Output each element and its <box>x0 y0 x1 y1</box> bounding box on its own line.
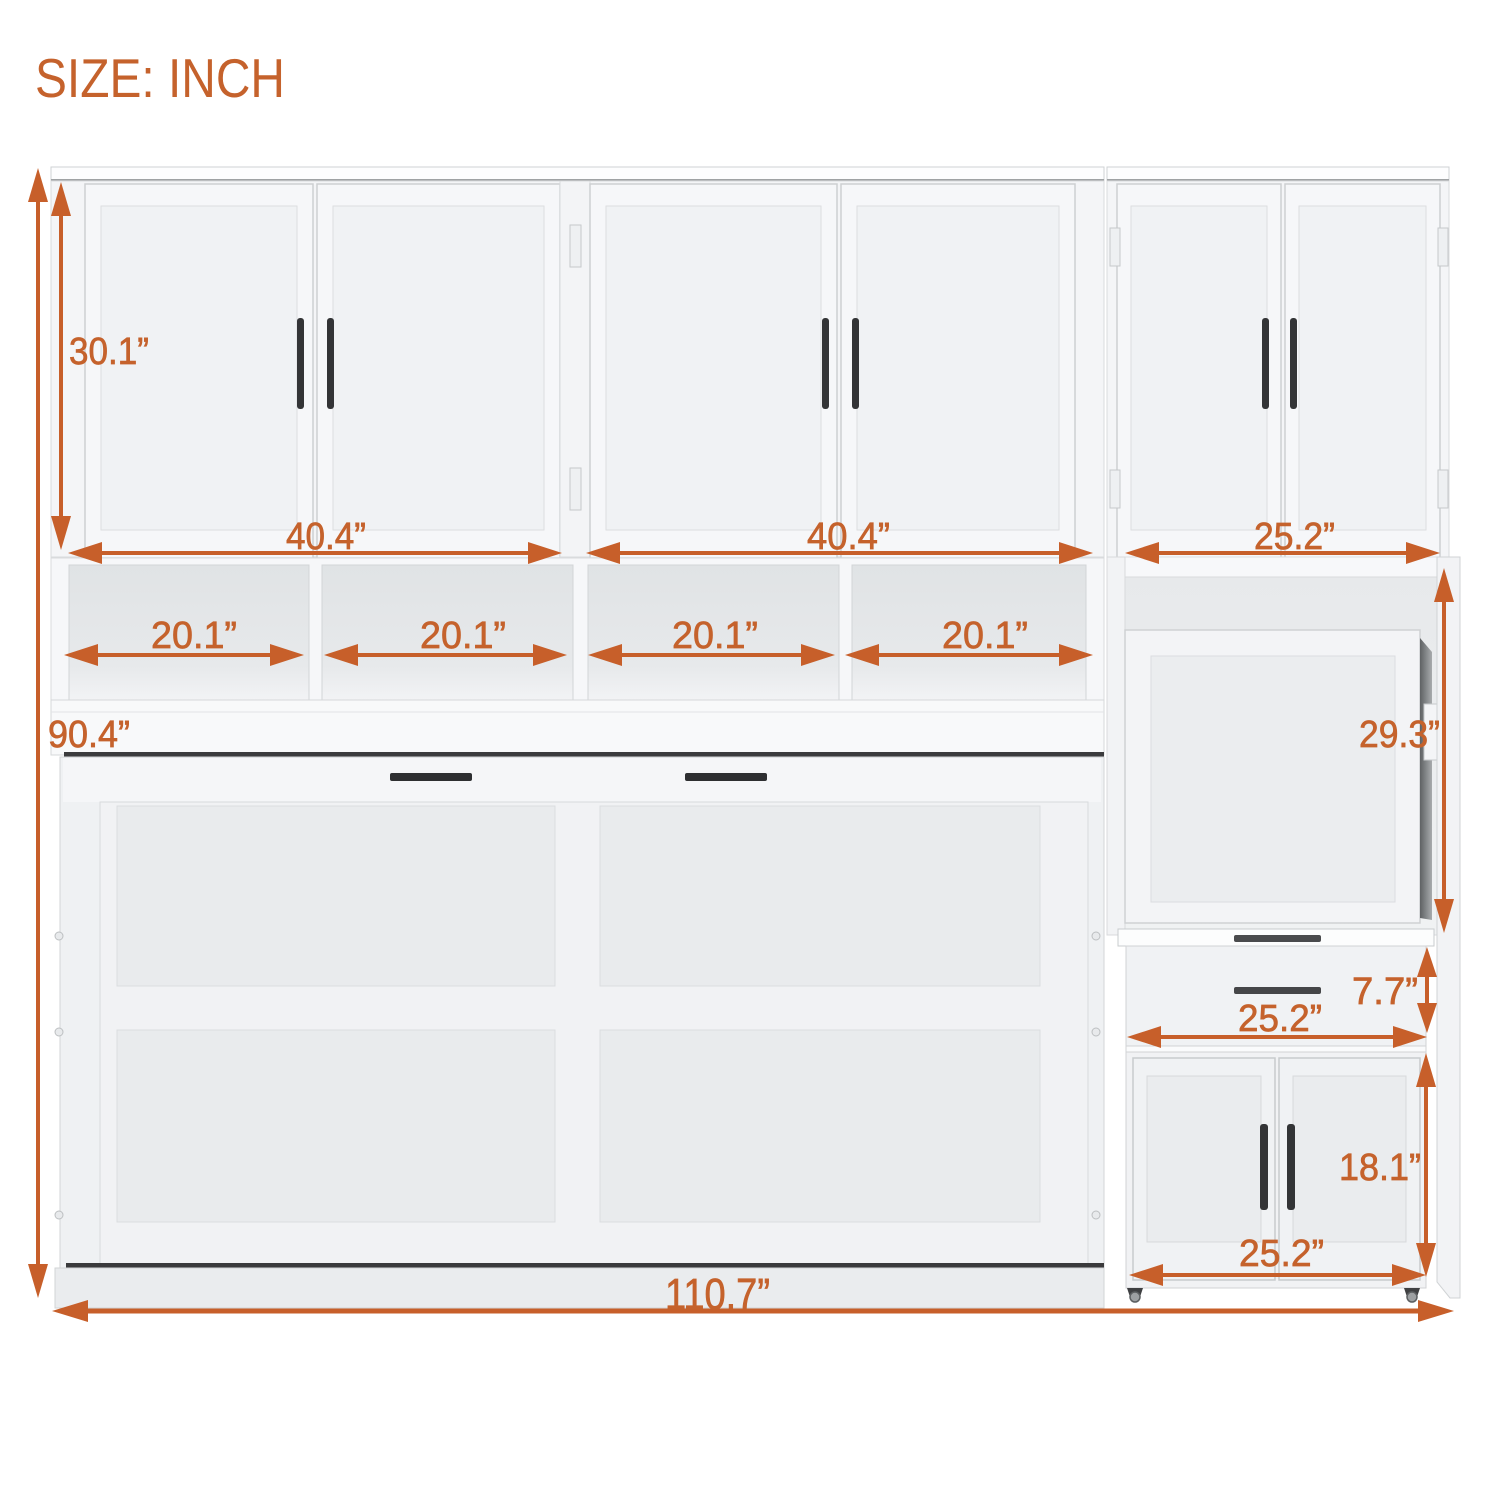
svg-text:29.3”: 29.3” <box>1359 714 1440 756</box>
svg-text:20.1”: 20.1” <box>942 615 1028 657</box>
svg-text:18.1”: 18.1” <box>1339 1147 1421 1189</box>
svg-text:25.2”: 25.2” <box>1254 516 1335 558</box>
svg-text:20.1”: 20.1” <box>672 615 758 657</box>
svg-text:40.4”: 40.4” <box>286 516 366 558</box>
svg-text:20.1”: 20.1” <box>420 615 506 657</box>
svg-text:30.1”: 30.1” <box>69 331 149 373</box>
svg-text:SIZE: INCH: SIZE: INCH <box>35 47 285 109</box>
svg-text:7.7”: 7.7” <box>1352 971 1418 1013</box>
svg-text:40.4”: 40.4” <box>807 516 890 558</box>
svg-text:25.2”: 25.2” <box>1239 1233 1324 1275</box>
svg-text:90.4”: 90.4” <box>48 714 130 756</box>
svg-text:25.2”: 25.2” <box>1238 998 1322 1040</box>
svg-text:20.1”: 20.1” <box>151 615 237 657</box>
svg-text:110.7”: 110.7” <box>665 1270 770 1319</box>
